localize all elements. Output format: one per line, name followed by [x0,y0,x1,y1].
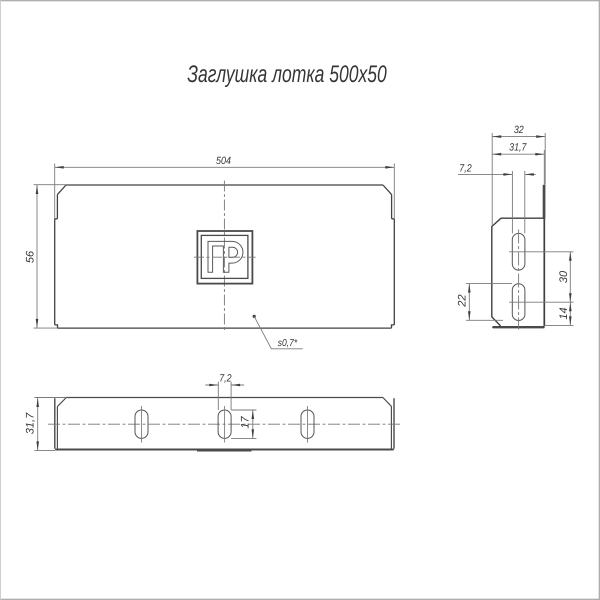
svg-text:17: 17 [239,416,251,429]
svg-text:14: 14 [558,307,570,319]
svg-text:7,2: 7,2 [219,373,232,385]
svg-text:31,7: 31,7 [509,141,527,153]
svg-text:30: 30 [558,270,570,283]
svg-text:31,7: 31,7 [24,412,36,434]
svg-text:504: 504 [216,155,231,167]
svg-text:56: 56 [24,250,36,263]
svg-text:22: 22 [457,294,469,307]
svg-text:7,2: 7,2 [459,162,472,174]
svg-text:32: 32 [514,124,524,136]
svg-text:s0,7*: s0,7* [278,338,298,349]
svg-text:Заглушка лотка 500х50: Заглушка лотка 500х50 [187,61,387,88]
